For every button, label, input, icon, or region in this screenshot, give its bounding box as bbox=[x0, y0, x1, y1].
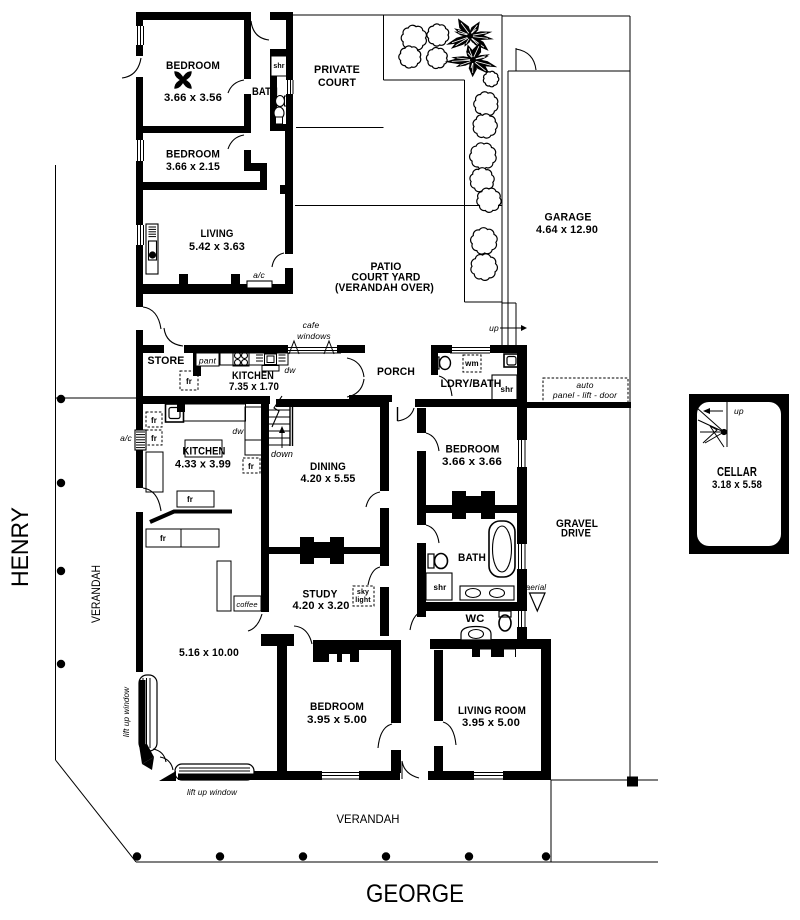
svg-text:GEORGE: GEORGE bbox=[366, 880, 464, 908]
svg-text:lift up window: lift up window bbox=[187, 788, 238, 797]
svg-text:light: light bbox=[355, 597, 371, 604]
svg-text:7.35 x 1.70: 7.35 x 1.70 bbox=[229, 381, 279, 393]
svg-text:LIVING ROOM: LIVING ROOM bbox=[458, 705, 526, 717]
svg-text:fr: fr bbox=[187, 495, 193, 504]
svg-text:3.95 x 5.00: 3.95 x 5.00 bbox=[462, 717, 520, 729]
svg-text:wm: wm bbox=[464, 359, 479, 368]
svg-text:dw: dw bbox=[232, 426, 244, 436]
svg-text:BATH: BATH bbox=[458, 552, 486, 564]
svg-text:shr: shr bbox=[501, 385, 514, 394]
svg-text:up: up bbox=[734, 406, 744, 416]
svg-text:(VERANDAH OVER): (VERANDAH OVER) bbox=[335, 282, 434, 294]
svg-text:a/c: a/c bbox=[120, 433, 132, 443]
svg-text:3.18 x 5.58: 3.18 x 5.58 bbox=[712, 479, 762, 491]
svg-text:dw: dw bbox=[284, 365, 296, 375]
svg-text:BATH: BATH bbox=[252, 86, 278, 98]
svg-text:5.42 x 3.63: 5.42 x 3.63 bbox=[189, 241, 245, 253]
svg-text:GARAGE: GARAGE bbox=[545, 212, 592, 224]
svg-text:4.33 x 3.99: 4.33 x 3.99 bbox=[175, 459, 231, 471]
svg-text:sky: sky bbox=[357, 589, 369, 596]
svg-text:panel - lift - door: panel - lift - door bbox=[552, 390, 618, 400]
svg-text:cafe: cafe bbox=[303, 320, 320, 330]
svg-text:shr: shr bbox=[273, 63, 284, 70]
svg-text:STUDY: STUDY bbox=[303, 589, 338, 601]
svg-text:COURT: COURT bbox=[318, 77, 356, 89]
svg-text:a/c: a/c bbox=[253, 270, 265, 280]
svg-text:PORCH: PORCH bbox=[377, 366, 415, 378]
svg-text:BEDROOM: BEDROOM bbox=[166, 60, 220, 72]
svg-text:STORE: STORE bbox=[148, 355, 185, 367]
svg-text:shr: shr bbox=[434, 583, 447, 592]
svg-text:fr: fr bbox=[151, 434, 157, 443]
svg-text:BEDROOM: BEDROOM bbox=[446, 444, 500, 456]
svg-text:3.95 x 5.00: 3.95 x 5.00 bbox=[307, 714, 367, 726]
svg-text:fr: fr bbox=[151, 416, 157, 425]
svg-text:5.16 x 10.00: 5.16 x 10.00 bbox=[179, 647, 239, 659]
svg-text:3.66 x 3.56: 3.66 x 3.56 bbox=[164, 92, 222, 104]
svg-text:VERANDAH: VERANDAH bbox=[89, 565, 103, 623]
svg-text:fr: fr bbox=[160, 534, 166, 543]
svg-text:KITCHEN: KITCHEN bbox=[183, 446, 226, 458]
svg-text:windows: windows bbox=[297, 331, 331, 341]
svg-text:3.66 x 2.15: 3.66 x 2.15 bbox=[166, 161, 220, 173]
svg-text:coffee: coffee bbox=[236, 600, 257, 609]
svg-text:CELLAR: CELLAR bbox=[717, 465, 757, 479]
svg-text:up: up bbox=[489, 323, 499, 333]
svg-text:4.20 x 5.55: 4.20 x 5.55 bbox=[301, 473, 356, 485]
svg-text:aerial: aerial bbox=[526, 583, 547, 592]
svg-text:auto: auto bbox=[576, 380, 593, 390]
svg-text:PRIVATE: PRIVATE bbox=[314, 64, 360, 76]
svg-text:fr: fr bbox=[186, 377, 192, 386]
svg-text:down: down bbox=[271, 449, 293, 459]
svg-text:lift up window: lift up window bbox=[122, 686, 131, 737]
svg-text:4.20 x 3.20: 4.20 x 3.20 bbox=[293, 600, 350, 612]
svg-text:4.64 x 12.90: 4.64 x 12.90 bbox=[536, 224, 598, 236]
svg-text:DINING: DINING bbox=[310, 461, 346, 473]
svg-text:VERANDAH: VERANDAH bbox=[337, 812, 400, 826]
svg-text:pant: pant bbox=[198, 356, 217, 366]
svg-text:3.66 x 3.66: 3.66 x 3.66 bbox=[442, 456, 502, 468]
svg-text:BEDROOM: BEDROOM bbox=[166, 149, 220, 161]
svg-text:WC: WC bbox=[466, 613, 485, 625]
svg-text:fr: fr bbox=[248, 462, 254, 471]
svg-text:DRIVE: DRIVE bbox=[561, 528, 591, 540]
svg-text:BEDROOM: BEDROOM bbox=[310, 701, 364, 713]
svg-text:LIVING: LIVING bbox=[201, 228, 234, 240]
svg-text:HENRY: HENRY bbox=[7, 507, 34, 587]
